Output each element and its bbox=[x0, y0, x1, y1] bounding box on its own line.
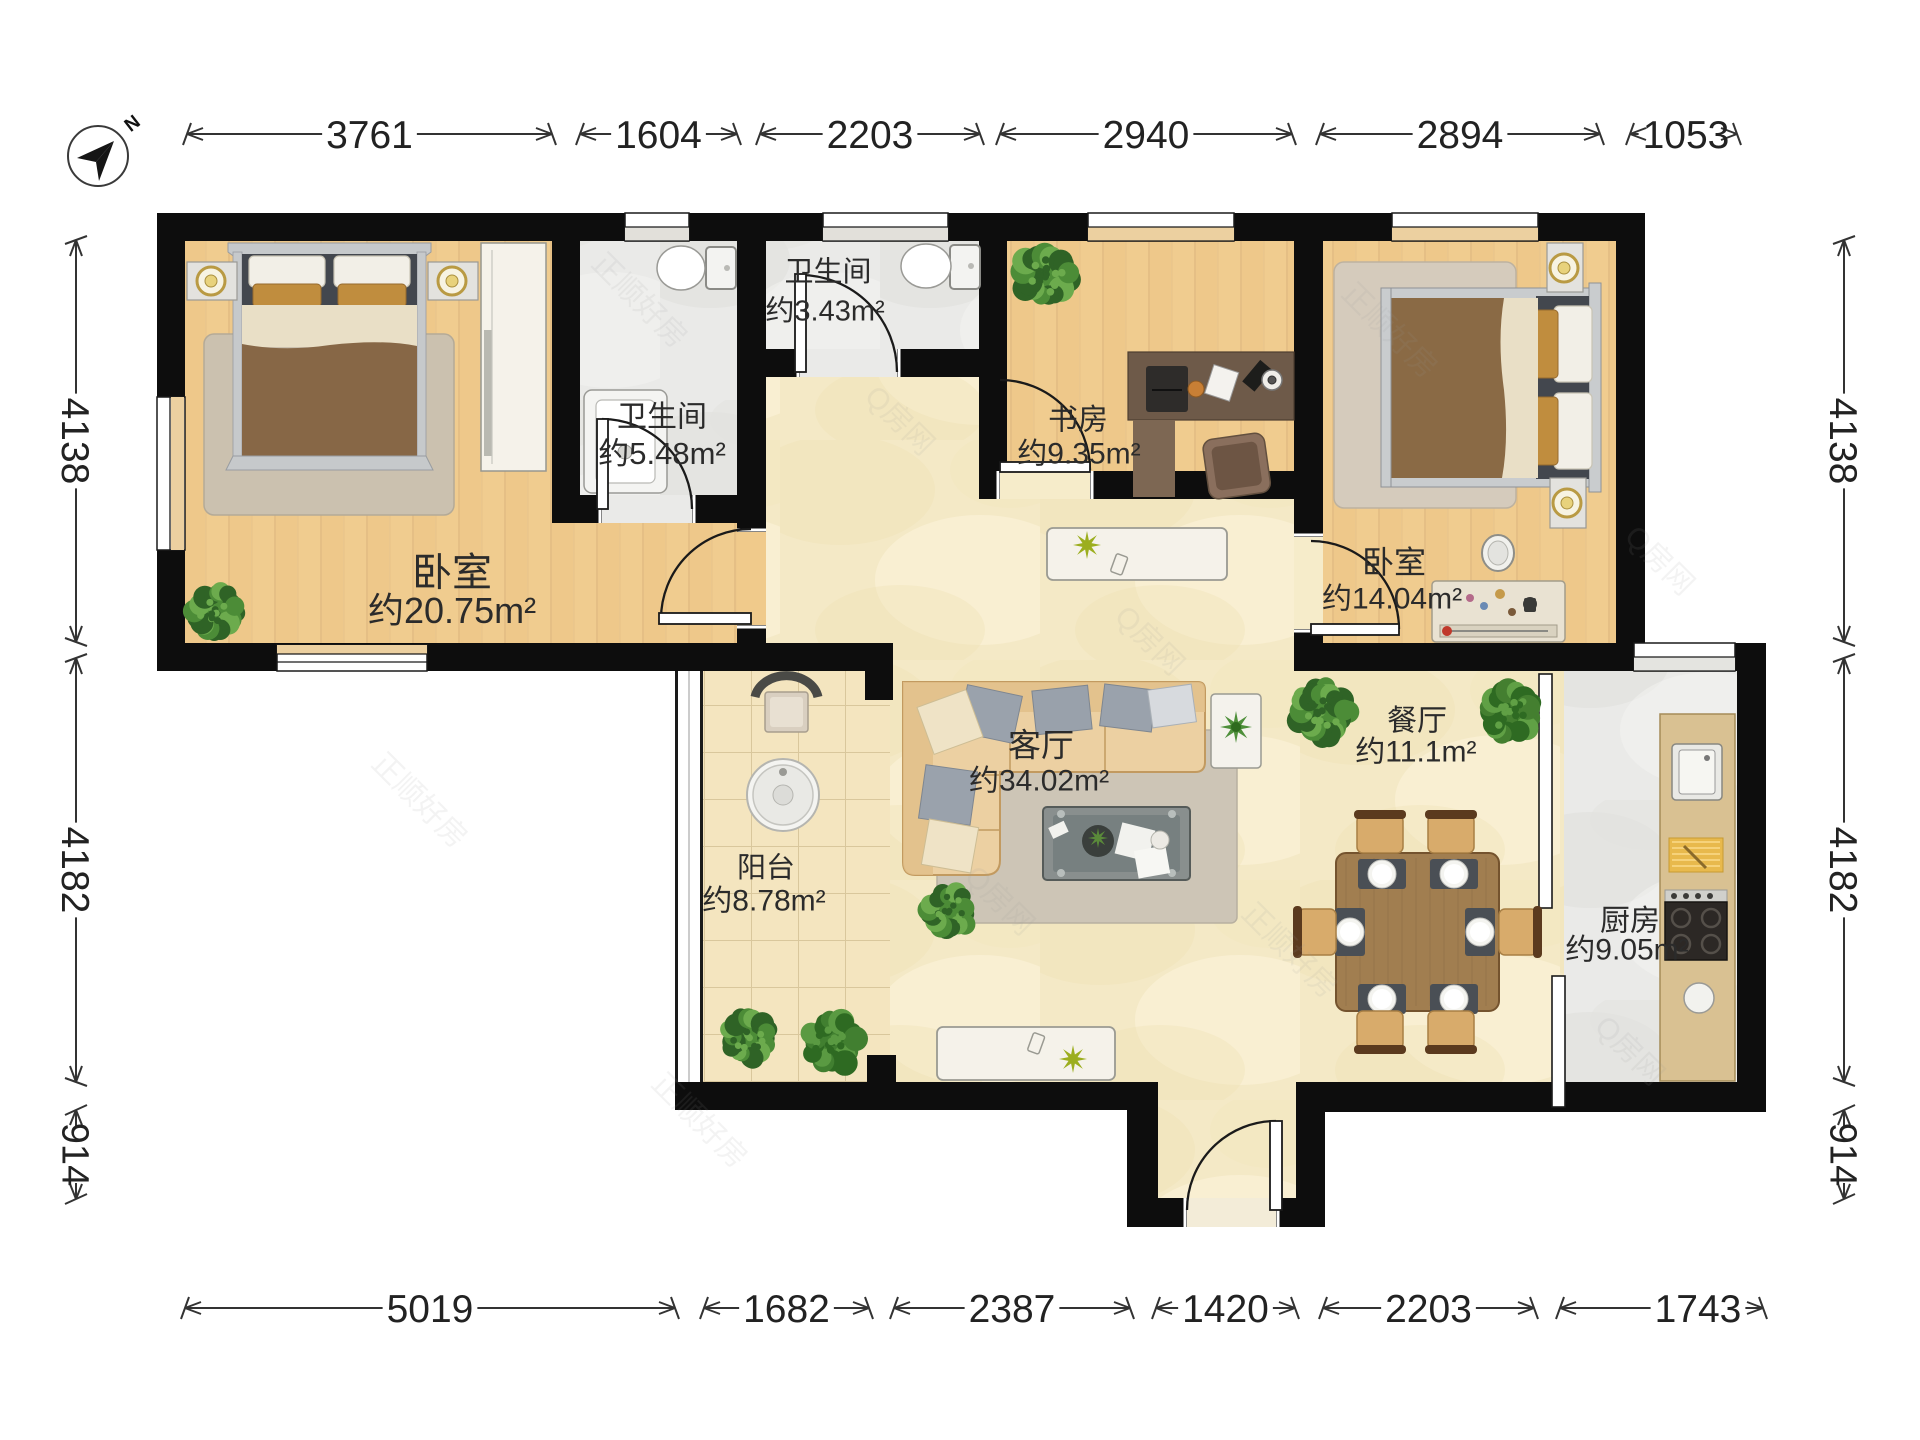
svg-text:2203: 2203 bbox=[827, 114, 914, 157]
svg-text:2387: 2387 bbox=[969, 1288, 1056, 1331]
svg-text:2894: 2894 bbox=[1417, 114, 1504, 157]
svg-text:4182: 4182 bbox=[53, 827, 96, 914]
svg-text:34.02m²: 34.02m² bbox=[999, 765, 1109, 798]
svg-text:8.78m²: 8.78m² bbox=[732, 885, 825, 918]
svg-text:3.43m²: 3.43m² bbox=[794, 295, 885, 327]
svg-text:11.1m²: 11.1m² bbox=[1385, 736, 1476, 769]
svg-text:914: 914 bbox=[54, 1123, 96, 1186]
svg-text:20.75m²: 20.75m² bbox=[404, 590, 536, 631]
svg-text:14.04m²: 14.04m² bbox=[1352, 583, 1462, 616]
svg-text:2940: 2940 bbox=[1103, 114, 1190, 157]
svg-text:2203: 2203 bbox=[1385, 1288, 1472, 1331]
svg-text:1604: 1604 bbox=[615, 114, 702, 157]
svg-text:5.48m²: 5.48m² bbox=[629, 436, 725, 471]
svg-text:4182: 4182 bbox=[1821, 827, 1864, 914]
svg-text:5019: 5019 bbox=[387, 1288, 474, 1331]
svg-text:1743: 1743 bbox=[1655, 1288, 1742, 1331]
svg-text:914: 914 bbox=[1822, 1123, 1864, 1186]
svg-text:1682: 1682 bbox=[743, 1288, 830, 1331]
svg-text:4138: 4138 bbox=[53, 398, 96, 485]
svg-text:3761: 3761 bbox=[326, 114, 413, 157]
svg-text:1053: 1053 bbox=[1643, 114, 1730, 157]
svg-text:4138: 4138 bbox=[1821, 398, 1864, 485]
svg-text:9.35m²: 9.35m² bbox=[1047, 438, 1140, 471]
svg-text:1420: 1420 bbox=[1182, 1288, 1269, 1331]
svg-text:9.05m²: 9.05m² bbox=[1595, 934, 1688, 967]
